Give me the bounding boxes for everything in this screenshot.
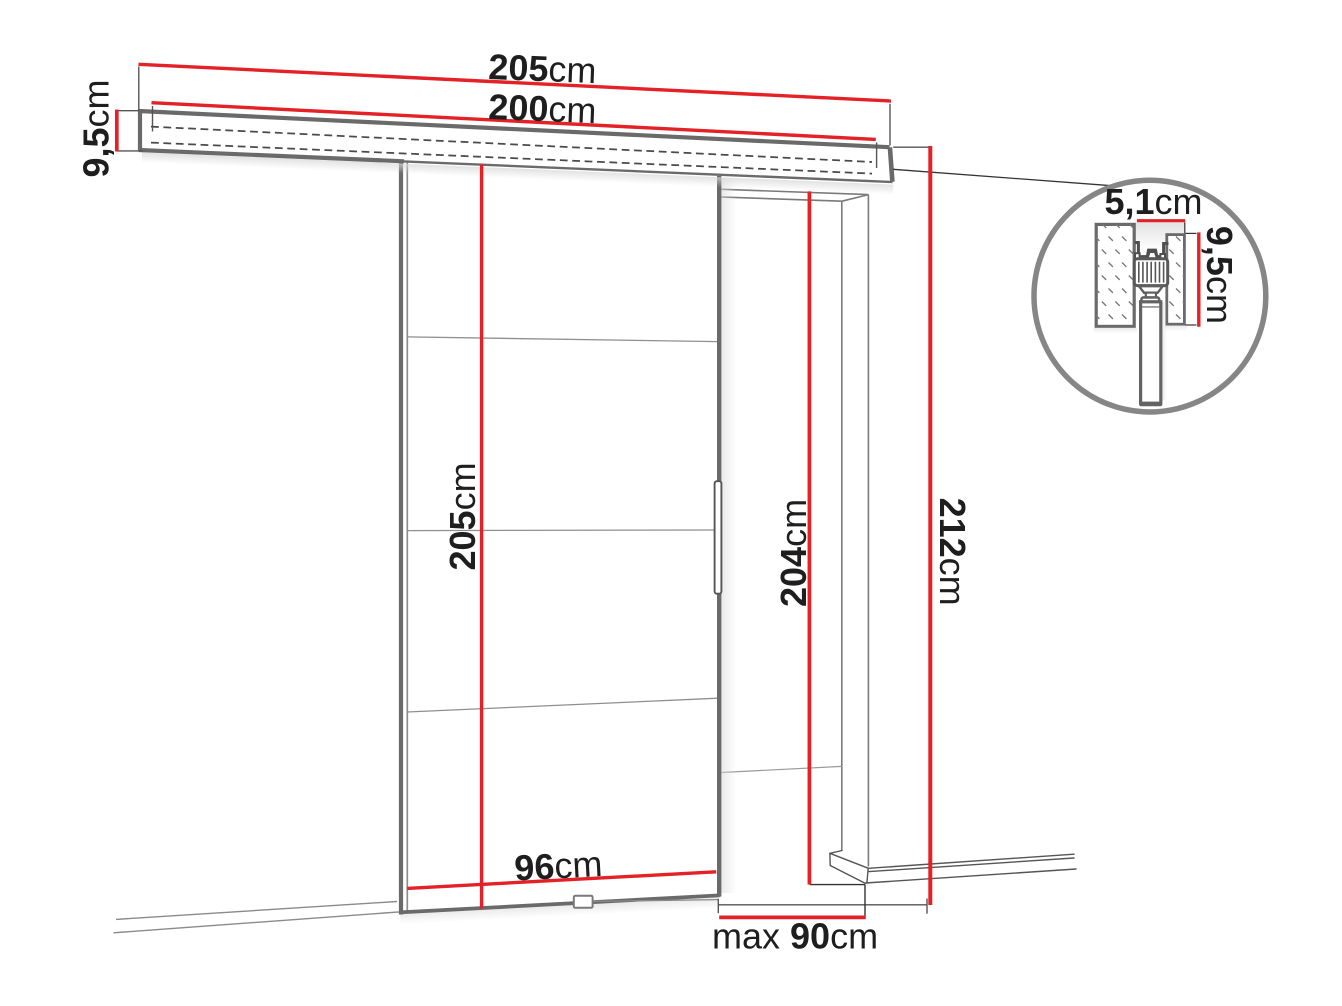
- svg-text:200cm: 200cm: [488, 86, 598, 131]
- svg-text:9,5cm: 9,5cm: [76, 79, 117, 177]
- svg-text:96cm: 96cm: [513, 843, 603, 889]
- svg-text:9,5cm: 9,5cm: [1199, 226, 1240, 324]
- svg-text:212cm: 212cm: [932, 498, 973, 606]
- svg-text:205cm: 205cm: [488, 46, 598, 91]
- svg-text:5,1cm: 5,1cm: [1105, 181, 1203, 222]
- svg-text:204cm: 204cm: [773, 499, 814, 607]
- svg-text:205cm: 205cm: [442, 462, 483, 570]
- svg-text:max 90cm: max 90cm: [712, 916, 878, 957]
